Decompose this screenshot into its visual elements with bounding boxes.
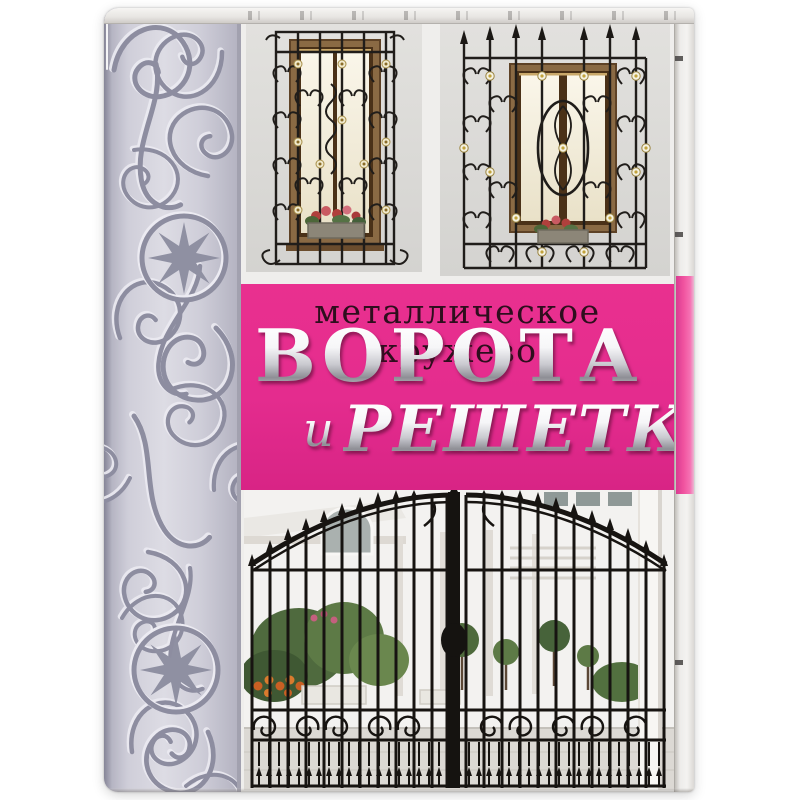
title-word-gates: ВОРОТА xyxy=(255,320,644,392)
scrollwork-ornament-graphic xyxy=(104,8,237,792)
title-word-grilles: РЕШЕТКИ xyxy=(343,398,694,462)
book-fore-edge xyxy=(674,8,694,792)
edge-clip-mark xyxy=(675,56,683,61)
book-cover: металлическое кружево ВОРОТА и РЕШЕТКИ xyxy=(104,8,694,792)
photo-window-grille-right xyxy=(440,22,670,276)
spine-ornament-panel xyxy=(104,8,241,792)
photo-window-grille-left xyxy=(246,24,422,272)
photo-gate xyxy=(244,490,674,790)
edge-clip-mark xyxy=(675,232,683,237)
edge-clip-mark xyxy=(675,660,683,665)
book-bottom-edge xyxy=(104,788,694,792)
top-edge-reflection xyxy=(224,11,686,20)
star-medallion-bottom xyxy=(133,627,219,713)
star-medallion-top xyxy=(141,215,227,301)
page-background: металлическое кружево ВОРОТА и РЕШЕТКИ xyxy=(0,0,800,800)
title-conjunction: и xyxy=(303,406,334,454)
title-band: металлическое кружево ВОРОТА и РЕШЕТКИ xyxy=(241,284,674,490)
fore-edge-band-wrap xyxy=(676,276,694,494)
book-top-edge xyxy=(104,8,694,24)
